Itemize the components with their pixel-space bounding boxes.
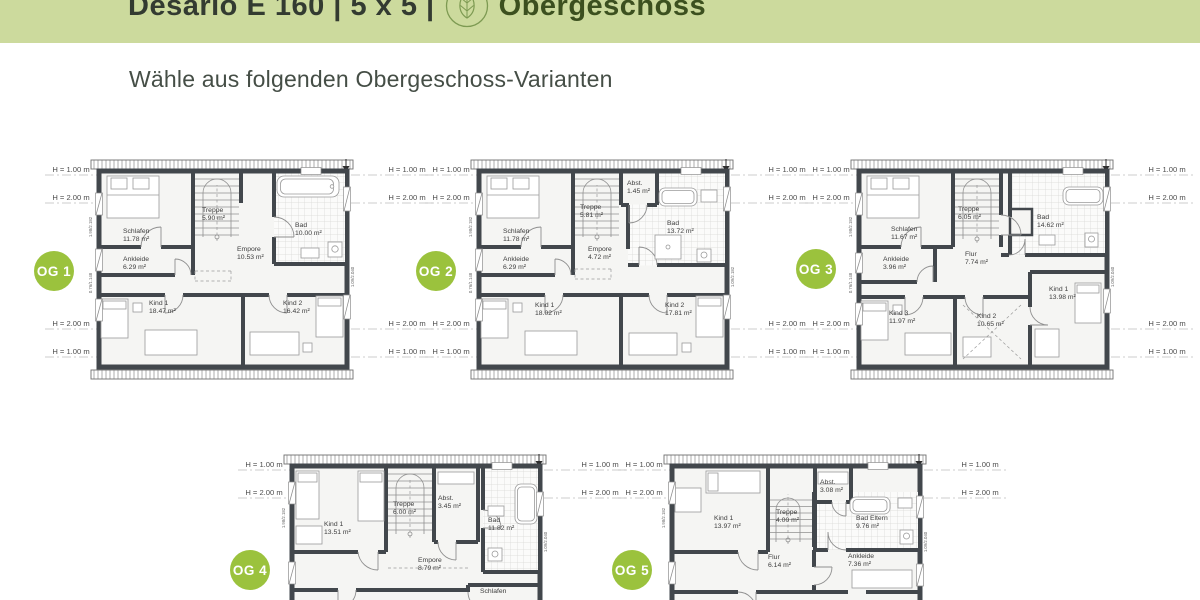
room-label-flur: Flur [965, 251, 977, 258]
room-label-empore: Empore [237, 246, 261, 253]
floorplan-og1-drawing: H = 1.00 m H = 2.00 m H = 2.00 m H = 1.0… [45, 157, 435, 397]
room-area-ankleide: 6.29 m² [503, 264, 527, 271]
room-label-treppe: Treppe [202, 207, 224, 214]
bed-icon [101, 299, 128, 338]
room-area-empore: 8.79 m² [418, 565, 442, 572]
room-area-flur: 6.14 m² [768, 562, 792, 569]
badge-og2[interactable]: OG 2 [416, 251, 456, 291]
room-area-treppe: 5.90 m² [202, 215, 226, 222]
h-label: H = 1.00 m [961, 460, 998, 469]
window-dimension-label: 1.09/2.182 [730, 266, 735, 287]
h-label: H = 1.00 m [768, 165, 805, 174]
room-label-schlafen: Schlafen [503, 228, 530, 235]
room-label-ankleide: Ankleide [883, 256, 909, 263]
bed-icon [706, 471, 760, 493]
h-label: H = 2.00 m [812, 193, 849, 202]
h-label: H = 2.00 m [581, 488, 618, 497]
window-dimension-label: 1.98/2.182 [88, 216, 93, 237]
h-label: H = 2.00 m [961, 488, 998, 497]
page: Desario E 160 | 5 x 5 | Obergeschoss Wäh… [0, 0, 1200, 600]
room-area-treppe: 4.00 m² [776, 517, 800, 524]
h-label: H = 1.00 m [388, 165, 425, 174]
room-label-ankleide: Ankleide [848, 553, 874, 560]
title-highlight: Obergeschoss [499, 0, 706, 25]
room-area-schlafen: 11.78 m² [123, 236, 150, 243]
room-label-kind1: Kind 1 [714, 515, 733, 522]
window-dimension-label: 0.76/1.148 [848, 272, 853, 293]
h-label: H = 2.00 m [812, 319, 849, 328]
floorplan-og5-drawing: H = 1.00 m H = 2.00 m H = 1.00 m H = 2.0… [618, 452, 1008, 600]
room-label-ankleide: Ankleide [503, 256, 529, 263]
room-area-kind1: 13.51 m² [324, 529, 352, 536]
room-area-bad: 14.62 m² [1037, 222, 1065, 229]
room-area-empore: 10.53 m² [237, 254, 265, 261]
floorplan-variant-og1[interactable]: H = 1.00 m H = 2.00 m H = 2.00 m H = 1.0… [45, 157, 435, 397]
window-dimension-label: 1.09/2.040 [543, 531, 548, 552]
h-label: H = 2.00 m [625, 488, 662, 497]
room-label-kind1: Kind 1 [535, 302, 554, 309]
room-label-abst: Abst. [438, 495, 454, 502]
h-label: H = 2.00 m [432, 193, 469, 202]
window-dimension-label: 1.98/2.182 [281, 507, 286, 528]
room-area-ankleide: 6.29 m² [123, 264, 147, 271]
room-label-bad: Bad Eltern [856, 515, 888, 522]
desk-icon [675, 488, 701, 512]
room-label-kind1: Kind 1 [1049, 286, 1068, 293]
window-dimension-label: 1.09/2.040 [923, 531, 928, 552]
room-label-treppe: Treppe [776, 509, 798, 516]
room-area-treppe: 6.00 m² [393, 509, 417, 516]
room-label-kind1: Kind 1 [324, 521, 343, 528]
room-area-empore: 4.72 m² [588, 254, 612, 261]
double-bed-icon [867, 176, 919, 218]
sink-icon [898, 498, 912, 508]
h-label: H = 2.00 m [388, 319, 425, 328]
room-label-bad: Bad [1037, 214, 1049, 221]
room-area-kind1: 13.98 m² [1049, 294, 1077, 301]
title-prefix: Desario E 160 | 5 x 5 | [128, 0, 435, 25]
floorplan-variant-og4[interactable]: H = 1.00 m H = 2.00 m H = 1.00 m H = 2.0… [238, 452, 628, 600]
window-dimension-label: 1.98/2.182 [848, 216, 853, 237]
page-title: Desario E 160 | 5 x 5 | Obergeschoss [128, 0, 706, 29]
roof-hatch-bottom [91, 370, 353, 379]
sink-icon [701, 190, 717, 202]
h-label: H = 1.00 m [1148, 165, 1185, 174]
floorplan-variant-og5[interactable]: H = 1.00 m H = 2.00 m H = 1.00 m H = 2.0… [618, 452, 1008, 600]
bed-icon [696, 296, 723, 337]
window-dimension-label: 0.76/1.148 [88, 272, 93, 293]
bed-icon [861, 301, 888, 340]
double-bed-icon [487, 176, 539, 218]
h-label: H = 2.00 m [52, 319, 89, 328]
h-label: H = 2.00 m [432, 319, 469, 328]
room-label-treppe: Treppe [958, 206, 980, 213]
room-label-abst: Abst. [627, 180, 643, 187]
h-label: H = 1.00 m [432, 165, 469, 174]
room-area-schlafen: 11.67 m² [891, 234, 918, 241]
header-band: Desario E 160 | 5 x 5 | Obergeschoss [0, 0, 1200, 43]
room-area-kind1: 13.97 m² [714, 523, 742, 530]
floorplan-variant-og3[interactable]: H = 1.00 m H = 2.00 m H = 2.00 m H = 1.0… [805, 157, 1195, 397]
room-label-kind3: Kind 3 [889, 310, 908, 317]
floorplan-variant-og2[interactable]: H = 1.00 m H = 2.00 m H = 2.00 m H = 1.0… [425, 157, 815, 397]
room-label-kind2: Kind 2 [977, 313, 996, 320]
window-dimension-label: 1.98/2.182 [661, 507, 666, 528]
room-label-schlafen: Schlafen [123, 228, 150, 235]
bed-icon [481, 299, 508, 338]
room-label-treppe: Treppe [393, 501, 415, 508]
window-dimension-label: 1.09/2.040 [1110, 266, 1115, 287]
room-area-schlafen: 11.78 m² [503, 236, 530, 243]
h-label: H = 1.00 m [1148, 347, 1185, 356]
room-label-treppe: Treppe [580, 204, 602, 211]
toilet-icon [1085, 233, 1098, 247]
h-label: H = 1.00 m [52, 165, 89, 174]
sink-icon [488, 506, 504, 516]
dresser-icon [963, 337, 991, 357]
desk-icon [1035, 329, 1059, 357]
h-label: H = 1.00 m [812, 165, 849, 174]
room-label-ankleide: Ankleide [123, 256, 149, 263]
window-dimension-label: 1.98/2.182 [468, 216, 473, 237]
badge-og1[interactable]: OG 1 [34, 251, 74, 291]
floorplan-og2-drawing: H = 1.00 m H = 2.00 m H = 2.00 m H = 1.0… [425, 157, 815, 397]
room-area-ankleide: 7.36 m² [848, 561, 872, 568]
leaf-icon [444, 0, 490, 29]
h-label: H = 1.00 m [388, 347, 425, 356]
room-area-bad: 11.82 m² [488, 525, 515, 532]
room-area-treppe: 6.05 m² [958, 214, 982, 221]
room-area-kind2: 17.81 m² [665, 310, 693, 317]
h-label: H = 1.00 m [52, 347, 89, 356]
badge-og3[interactable]: OG 3 [796, 249, 836, 289]
wardrobe-icon [438, 472, 474, 484]
h-label: H = 1.00 m [812, 347, 849, 356]
room-area-kind1: 18.47 m² [149, 308, 177, 315]
room-label-kind2: Kind 2 [665, 302, 684, 309]
h-label: H = 2.00 m [1148, 319, 1185, 328]
room-area-bad: 9.76 m² [856, 523, 880, 530]
room-label-empore: Empore [418, 557, 442, 564]
room-label-kind1: Kind 1 [149, 300, 168, 307]
badge-og4[interactable]: OG 4 [230, 550, 270, 590]
roof-hatch-bottom [471, 370, 733, 379]
badge-og5[interactable]: OG 5 [612, 550, 652, 590]
toilet-icon [328, 242, 342, 257]
room-area-kind1: 18.02 m² [535, 310, 563, 317]
room-area-flur: 7.74 m² [965, 259, 989, 266]
bed-icon [358, 471, 384, 521]
bed-icon [1075, 283, 1101, 323]
room-area-abst: 3.08 m² [820, 487, 844, 494]
floorplan-og3-drawing: H = 1.00 m H = 2.00 m H = 2.00 m H = 1.0… [805, 157, 1195, 397]
roof-hatch-bottom [851, 370, 1113, 379]
h-label: H = 1.00 m [245, 460, 282, 469]
bed-icon [316, 296, 343, 337]
bathtub-icon [1063, 187, 1103, 205]
room-area-bad: 10.00 m² [295, 230, 323, 237]
h-label: H = 2.00 m [768, 319, 805, 328]
h-label: H = 2.00 m [768, 193, 805, 202]
h-label: H = 2.00 m [1148, 193, 1185, 202]
room-area-treppe: 5.81 m² [580, 212, 604, 219]
bathtub-icon [850, 497, 890, 514]
bathtub-icon [515, 484, 537, 524]
window-dimension-label: 0.76/1.148 [468, 272, 473, 293]
room-label-bad: Bad [667, 220, 679, 227]
room-label-abst: Abst. [820, 479, 836, 486]
room-label-kind2: Kind 2 [283, 300, 302, 307]
wardrobe-icon [852, 570, 912, 588]
room-area-abst: 3.45 m² [438, 503, 462, 510]
bed-icon [296, 471, 319, 519]
h-label: H = 1.00 m [768, 347, 805, 356]
room-label-bad: Bad [488, 517, 500, 524]
room-area-abst: 1.45 m² [627, 188, 651, 195]
room-area-ankleide: 3.96 m² [883, 264, 907, 271]
h-label: H = 1.00 m [432, 347, 469, 356]
room-label-bad: Bad [295, 222, 307, 229]
room-area-kind3: 11.97 m² [889, 318, 916, 325]
h-label: H = 1.00 m [625, 460, 662, 469]
subtitle: Wähle aus folgenden Obergeschoss-Variant… [129, 66, 613, 93]
h-label: H = 2.00 m [52, 193, 89, 202]
window-dimension-label: 1.09/2.040 [350, 266, 355, 287]
desk-icon [296, 526, 322, 544]
room-area-bad: 13.72 m² [667, 228, 695, 235]
h-label: H = 2.00 m [388, 193, 425, 202]
double-bed-icon [107, 176, 159, 218]
bathtub-icon [659, 188, 697, 206]
room-area-kind2: 10.65 m² [977, 321, 1005, 328]
toilet-icon [697, 249, 711, 262]
h-label: H = 2.00 m [245, 488, 282, 497]
bathtub-icon [277, 176, 339, 197]
sink-icon [301, 248, 319, 258]
sink-icon [1039, 235, 1055, 245]
floorplan-og4-drawing: H = 1.00 m H = 2.00 m H = 1.00 m H = 2.0… [238, 452, 628, 600]
room-label-schlafen: Schlafen [891, 226, 918, 233]
toilet-icon [900, 530, 913, 544]
h-label: H = 1.00 m [581, 460, 618, 469]
room-area-kind2: 16.42 m² [283, 308, 311, 315]
shower-icon [655, 235, 681, 259]
room-label-empore: Empore [588, 246, 612, 253]
room-label-schlafen: Schlafen [480, 588, 507, 595]
room-label-flur: Flur [768, 554, 780, 561]
toilet-icon [488, 548, 502, 561]
